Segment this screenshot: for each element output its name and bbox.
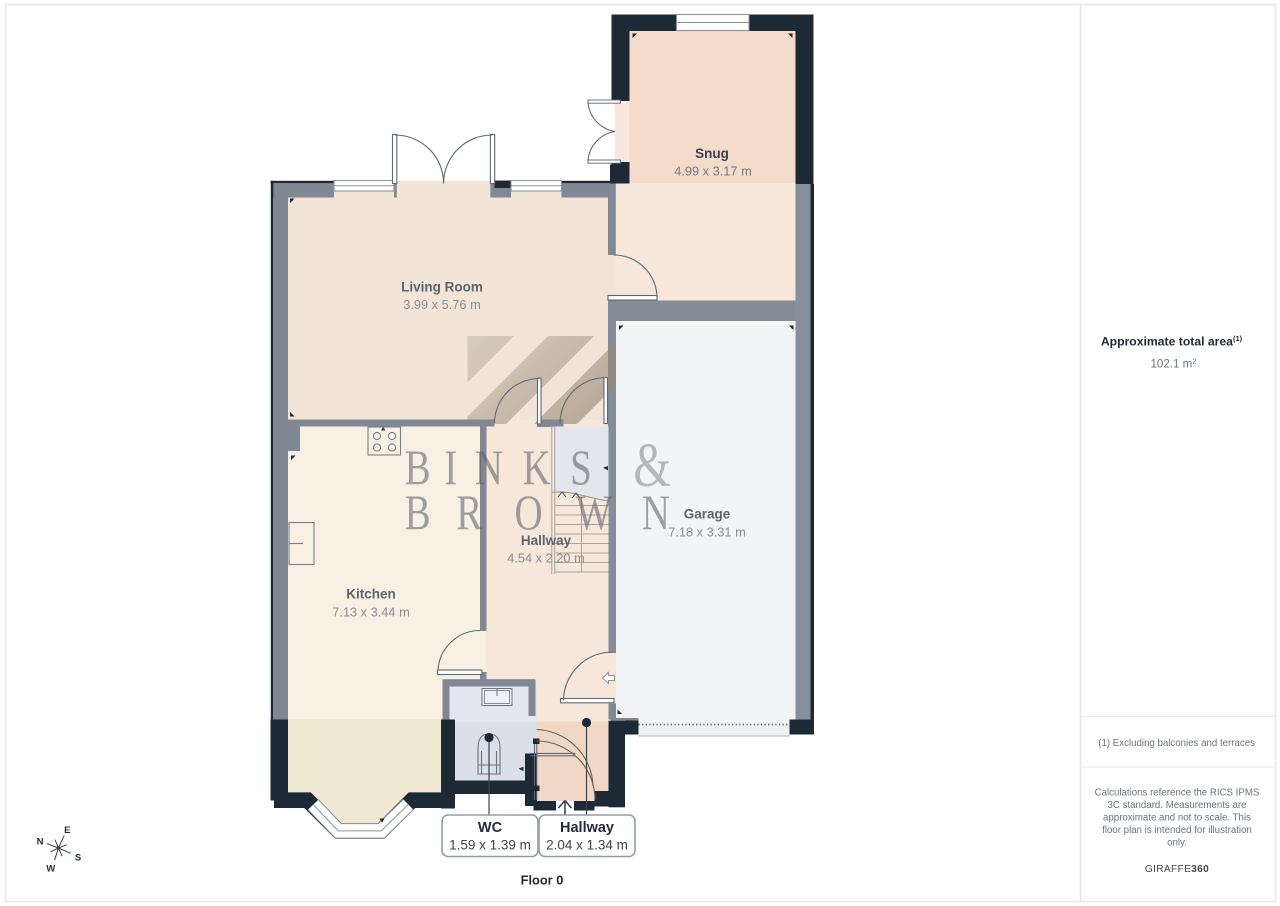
svg-text:Hallway: Hallway: [521, 533, 572, 548]
svg-text:1.59 x 1.39 m: 1.59 x 1.39 m: [449, 838, 531, 853]
svg-text:102.1 m2: 102.1 m2: [1150, 357, 1196, 371]
svg-text:N: N: [37, 837, 44, 848]
svg-text:Hallway: Hallway: [560, 820, 614, 836]
svg-text:GIRAFFE360: GIRAFFE360: [1145, 864, 1209, 875]
svg-text:(1) Excluding balconies and te: (1) Excluding balconies and terraces: [1098, 738, 1255, 749]
svg-text:only.: only.: [1167, 838, 1187, 849]
svg-text:7.18 x 3.31 m: 7.18 x 3.31 m: [668, 525, 746, 540]
svg-text:3C standard. Measurements are: 3C standard. Measurements are: [1108, 800, 1247, 811]
svg-text:Snug: Snug: [695, 146, 729, 161]
svg-text:Garage: Garage: [684, 507, 731, 522]
svg-text:N: N: [642, 484, 670, 540]
svg-text:Floor 0: Floor 0: [521, 873, 564, 888]
svg-text:S: S: [75, 853, 81, 864]
svg-text:Kitchen: Kitchen: [346, 587, 396, 602]
svg-text:Living Room: Living Room: [401, 280, 483, 295]
svg-text:Calculations reference the RIC: Calculations reference the RICS IPMS: [1095, 788, 1260, 799]
svg-text:B: B: [405, 484, 431, 540]
svg-text:I: I: [444, 439, 457, 495]
svg-text:2.04 x 1.34 m: 2.04 x 1.34 m: [546, 838, 628, 853]
svg-text:floor plan is intended for ill: floor plan is intended for illustration: [1102, 825, 1252, 836]
svg-text:W: W: [575, 484, 612, 540]
svg-text:4.99 x 3.17 m: 4.99 x 3.17 m: [674, 164, 752, 179]
svg-text:E: E: [64, 825, 70, 836]
svg-text:4.54 x 2.20 m: 4.54 x 2.20 m: [507, 551, 585, 566]
svg-text:O: O: [514, 484, 542, 540]
svg-text:approximate and not to scale.: approximate and not to scale. This: [1103, 813, 1251, 824]
svg-text:Approximate total area(1): Approximate total area(1): [1101, 334, 1243, 349]
svg-text:3.99 x 5.76 m: 3.99 x 5.76 m: [403, 297, 481, 312]
svg-text:R: R: [456, 484, 482, 540]
svg-text:7.13 x 3.44 m: 7.13 x 3.44 m: [332, 605, 410, 620]
svg-text:WC: WC: [478, 820, 503, 836]
svg-text:W: W: [46, 864, 55, 875]
